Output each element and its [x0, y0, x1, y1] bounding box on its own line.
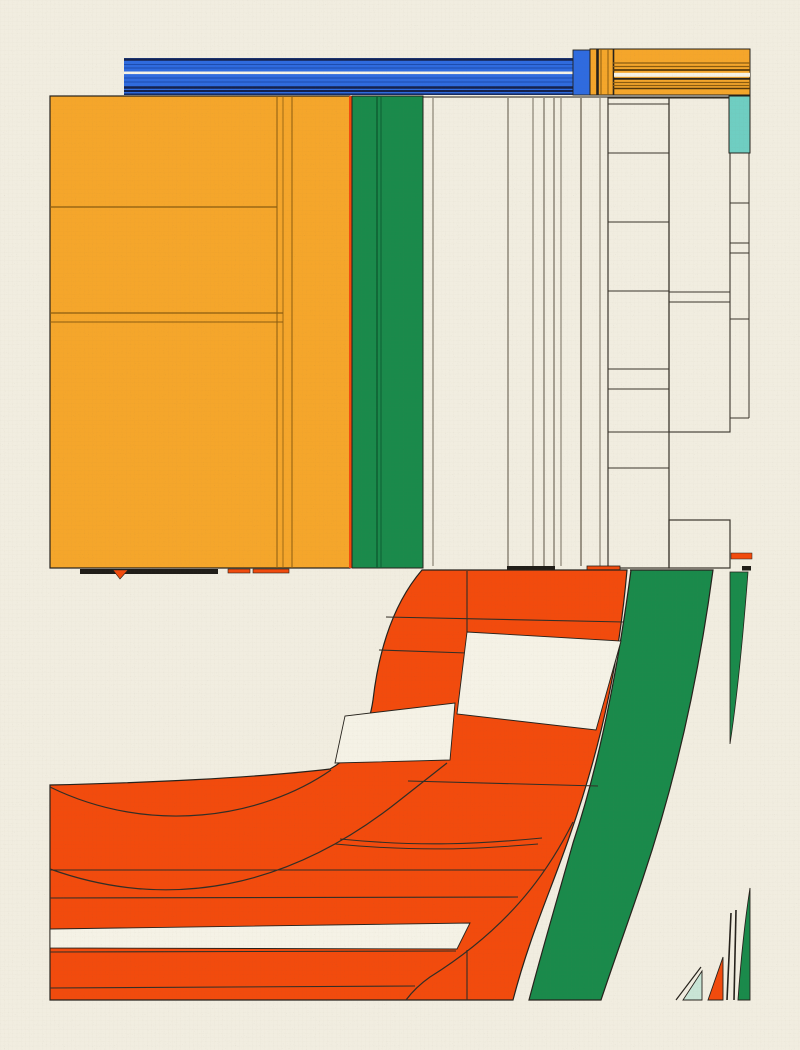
white-stripe-upper: [457, 632, 621, 730]
orange-strip-1: [228, 569, 250, 573]
orange-strip-2: [253, 569, 289, 573]
artwork-canvas: [0, 0, 800, 1050]
black-dash: [742, 566, 751, 571]
dark-strip-left: [80, 569, 218, 574]
amber-band-white-gap: [614, 73, 750, 77]
blue-band-white-gap: [124, 72, 573, 75]
big-amber-rect: [50, 96, 350, 568]
blue-striped-band: [124, 58, 573, 95]
blue-solid-block: [573, 50, 590, 95]
teal-block: [729, 96, 750, 153]
artwork: [0, 0, 800, 1050]
small-orange-bar: [731, 553, 752, 559]
green-vertical-band: [352, 96, 423, 568]
